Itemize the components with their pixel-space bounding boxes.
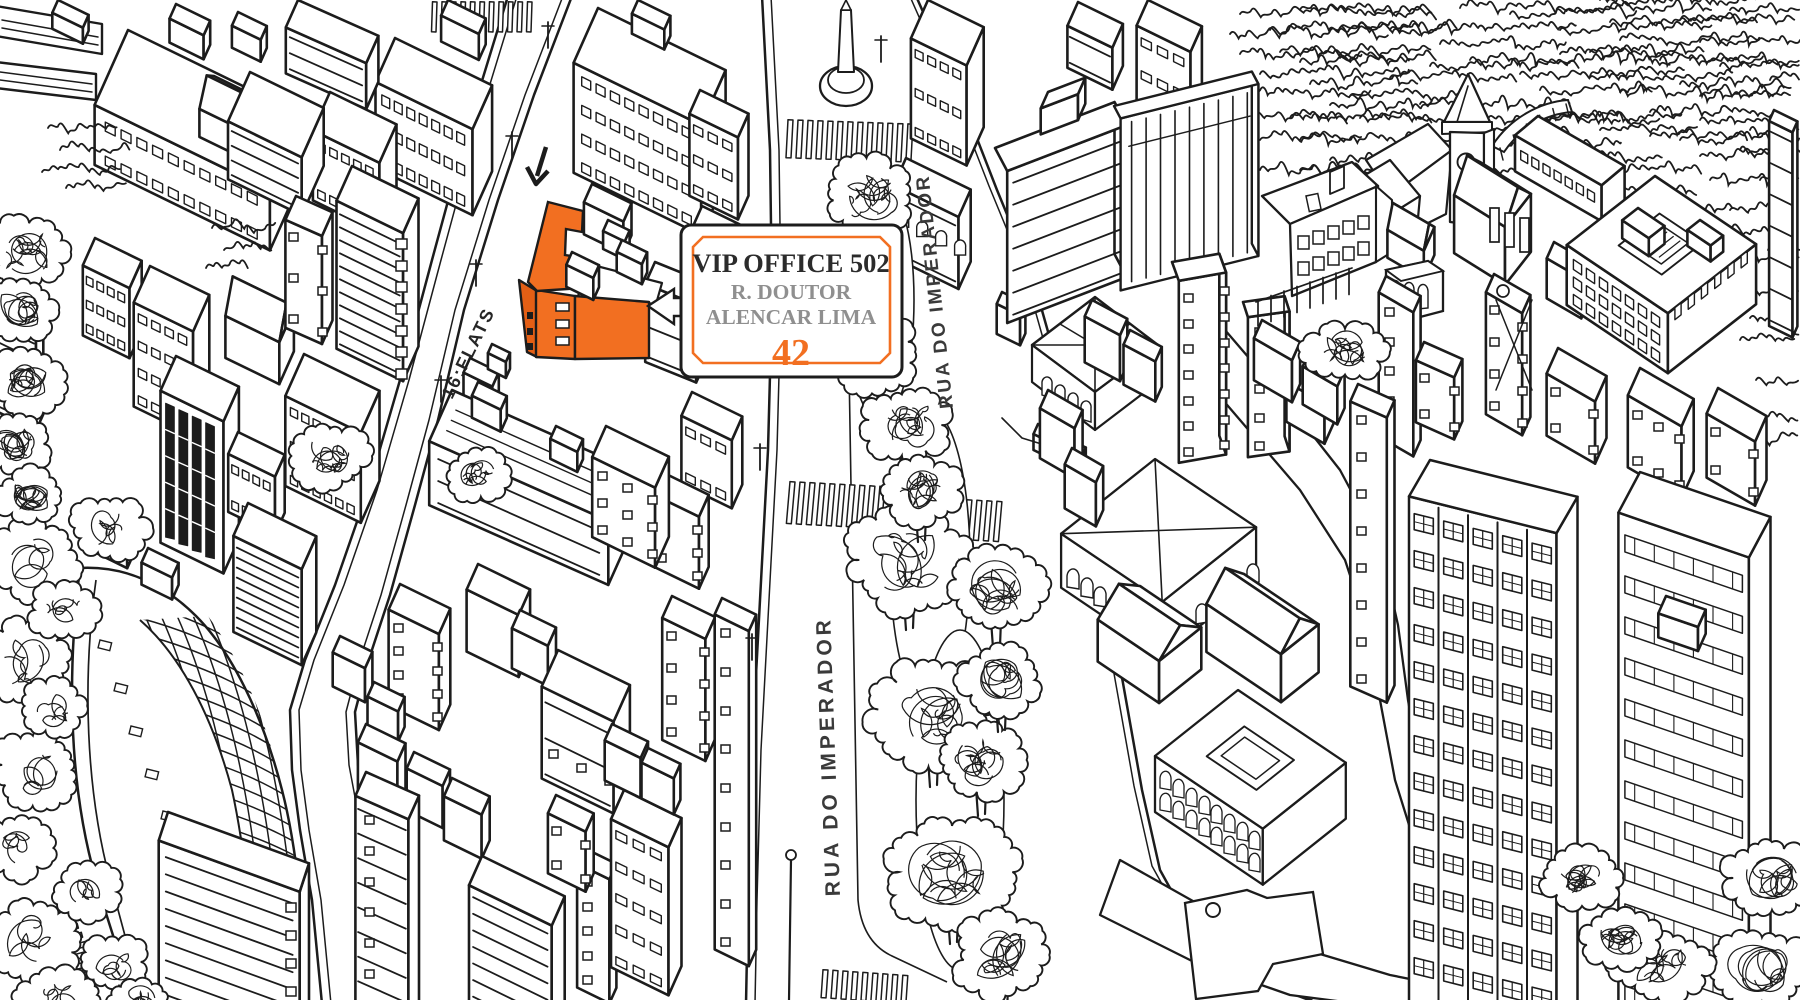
svg-text:VIP OFFICE 502: VIP OFFICE 502 [692, 248, 889, 278]
svg-text:42: 42 [772, 332, 810, 374]
svg-text:ALENCAR LIMA: ALENCAR LIMA [706, 305, 877, 329]
svg-text:R. DOUTOR: R. DOUTOR [731, 280, 852, 304]
